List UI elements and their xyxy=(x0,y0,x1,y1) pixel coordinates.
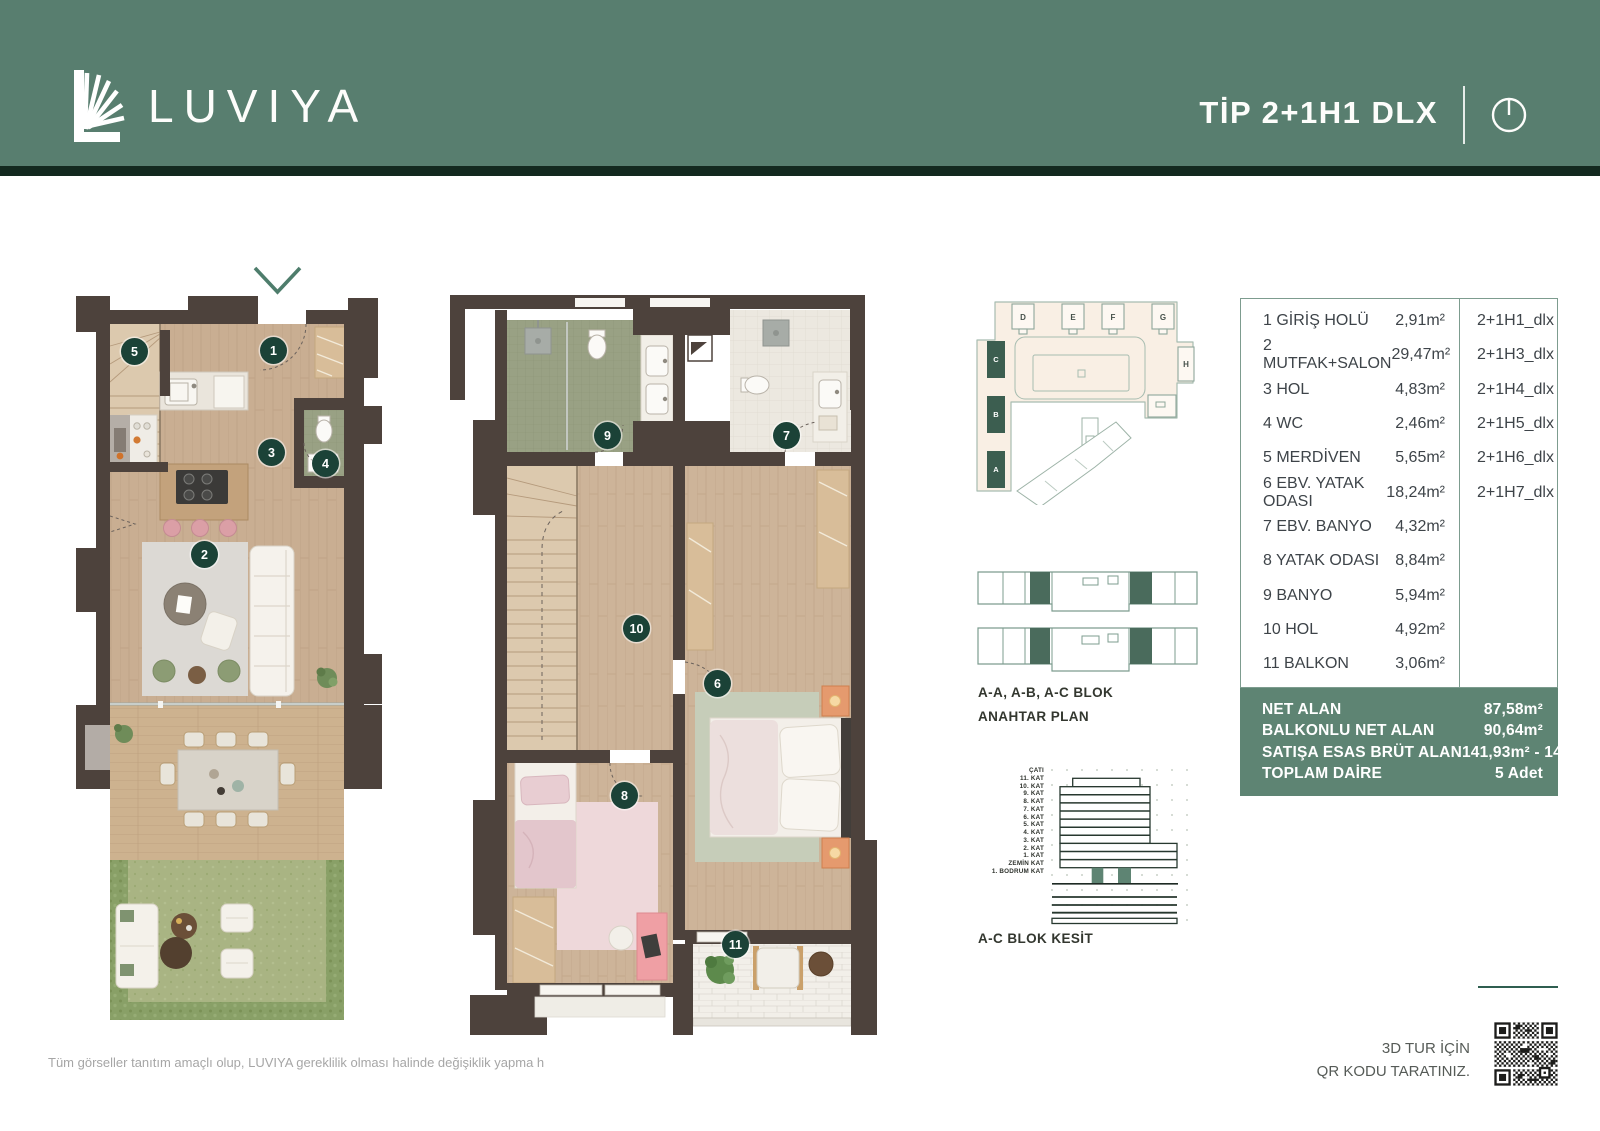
shaft-icon xyxy=(688,335,712,361)
block-label: D xyxy=(1020,313,1026,322)
key-plan-caption: A-A, A-B, A-C BLOK ANAHTAR PLAN xyxy=(978,681,1113,729)
summary-value: 5 Adet xyxy=(1495,765,1543,783)
table-row: 2 MUTFAK+SALON29,47m² xyxy=(1241,338,1459,372)
summary-label: NET ALAN xyxy=(1262,701,1341,719)
summary-box: NET ALAN87,58m² BALKONLU NET ALAN90,64m²… xyxy=(1240,688,1558,796)
room-badge-ensuite-bath: 7 xyxy=(773,422,800,449)
header-band: LUVIYA TİP 2+1H1 DLX xyxy=(0,0,1600,166)
block-label: C xyxy=(993,355,999,364)
summary-value: 141,93m² - 146,06m² xyxy=(1462,744,1600,762)
block-label: G xyxy=(1160,313,1166,322)
room-area: 5,94m² xyxy=(1395,587,1445,605)
room-label: 5 MERDİVEN xyxy=(1263,449,1361,467)
table-row: 6 EBV. YATAK ODASI18,24m² xyxy=(1241,475,1459,509)
toilet xyxy=(588,335,606,359)
utility-box xyxy=(85,725,110,770)
table-row: 5 MERDİVEN5,65m² xyxy=(1241,441,1459,475)
room-badge-master: 6 xyxy=(704,670,731,697)
disclaimer-text: Tüm görseller tanıtım amaçlı olup, LUVIY… xyxy=(48,1055,544,1070)
section-column xyxy=(1118,868,1131,884)
outdoor-table xyxy=(160,937,192,969)
room-label: 10 HOL xyxy=(1263,621,1318,639)
room-area: 4,92m² xyxy=(1395,621,1445,639)
room-area: 4,83m² xyxy=(1395,381,1445,399)
section-diagram xyxy=(1048,766,1196,934)
floor-label: ÇATI xyxy=(930,767,1044,775)
summary-row: BALKONLU NET ALAN90,64m² xyxy=(1262,722,1543,740)
balcony-table xyxy=(809,952,833,976)
table-row: 9 BANYO5,94m² xyxy=(1241,578,1459,612)
hedge-right xyxy=(326,860,344,1020)
hedge-bottom xyxy=(110,1002,344,1020)
room-label: 3 HOL xyxy=(1263,381,1309,399)
floor-label: 2. KAT xyxy=(930,845,1044,853)
site-road xyxy=(1017,418,1131,505)
room-label: 11 BALKON xyxy=(1263,655,1349,673)
table-row: 8 YATAK ODASI8,84m² xyxy=(1241,544,1459,578)
sofa xyxy=(250,546,294,696)
summary-row: NET ALAN87,58m² xyxy=(1262,701,1543,719)
block-label: F xyxy=(1111,313,1116,322)
outdoor-table xyxy=(171,913,197,939)
type-label: 2+1H1_dlx xyxy=(1460,304,1557,338)
room-label: 9 BANYO xyxy=(1263,587,1332,605)
fireplace xyxy=(110,415,130,469)
qr-caption: 3D TUR İÇİN QR KODU TARATINIZ. xyxy=(1317,1037,1470,1083)
room-area: 18,24m² xyxy=(1386,484,1445,502)
type-label: 2+1H7_dlx xyxy=(1460,475,1557,509)
brand-logo: LUVIYA xyxy=(70,66,368,146)
room-badge-entry: 1 xyxy=(260,337,287,364)
stool xyxy=(192,520,209,537)
section-floor-labels: ÇATI 11. KAT 10. KAT 9. KAT 8. KAT 7. KA… xyxy=(930,767,1044,876)
room-area: 4,32m² xyxy=(1395,518,1445,536)
key-plan-caption-line2: ANAHTAR PLAN xyxy=(978,705,1113,729)
highlighted-unit xyxy=(1030,628,1050,664)
highlighted-unit xyxy=(1030,572,1050,604)
block-label: B xyxy=(993,410,999,419)
room-badge-bedroom: 8 xyxy=(611,782,638,809)
section-caption: A-C BLOK KESİT xyxy=(978,931,1093,946)
floor-label: 1. BODRUM KAT xyxy=(930,868,1044,876)
header-divider xyxy=(1463,86,1465,144)
room-area: 29,47m² xyxy=(1391,346,1450,364)
floor-label: ZEMİN KAT xyxy=(930,860,1044,868)
header-accent-strip xyxy=(0,166,1600,176)
wardrobe xyxy=(817,470,849,588)
side-table xyxy=(188,666,206,684)
room-label: 7 EBV. BANYO xyxy=(1263,518,1372,536)
block-label: A xyxy=(993,465,999,474)
summary-label: BALKONLU NET ALAN xyxy=(1262,722,1434,740)
floor-label: 7. KAT xyxy=(930,806,1044,814)
entry-wardrobe xyxy=(315,327,345,378)
block-label: H xyxy=(1183,360,1189,369)
luviya-emblem-icon xyxy=(70,66,128,146)
balcony-chair xyxy=(757,948,799,988)
entrance-arrow-icon xyxy=(255,268,300,292)
room-badge-wc: 4 xyxy=(312,450,339,477)
wardrobe xyxy=(687,523,713,650)
stool xyxy=(220,520,237,537)
room-area: 2,91m² xyxy=(1395,312,1445,330)
qr-accent-line xyxy=(1478,986,1558,988)
floor-label: 8. KAT xyxy=(930,798,1044,806)
type-label: 2+1H6_dlx xyxy=(1460,441,1557,475)
wardrobe xyxy=(513,897,555,983)
summary-row: TOPLAM DAİRE5 Adet xyxy=(1262,765,1543,783)
table-row: 11 BALKON3,06m² xyxy=(1241,647,1459,681)
room-badge-living: 2 xyxy=(191,541,218,568)
pouf xyxy=(218,660,240,682)
summary-label: TOPLAM DAİRE xyxy=(1262,765,1382,783)
area-table: 1 GİRİŞ HOLÜ2,91m² 2 MUTFAK+SALON29,47m²… xyxy=(1240,298,1558,688)
table-row: 4 WC2,46m² xyxy=(1241,407,1459,441)
floor-label: 4. KAT xyxy=(930,829,1044,837)
floor-label: 5. KAT xyxy=(930,821,1044,829)
qr-code xyxy=(1492,1020,1560,1088)
block-label: E xyxy=(1070,313,1076,322)
section-column xyxy=(1092,868,1104,884)
type-label: 2+1H4_dlx xyxy=(1460,373,1557,407)
qr-caption-line1: 3D TUR İÇİN xyxy=(1317,1037,1470,1060)
compass-icon xyxy=(1489,95,1529,135)
rooms-column: 1 GİRİŞ HOLÜ2,91m² 2 MUTFAK+SALON29,47m²… xyxy=(1241,299,1460,687)
page-title: TİP 2+1H1 DLX xyxy=(1199,95,1438,131)
room-badge-bathroom: 9 xyxy=(594,422,621,449)
floor-label: 1. KAT xyxy=(930,852,1044,860)
floor-plan-ground xyxy=(48,258,392,1040)
tall-cabinet xyxy=(128,415,157,469)
qr-caption-line2: QR KODU TARATINIZ. xyxy=(1317,1060,1470,1083)
floor-label: 11. KAT xyxy=(930,775,1044,783)
room-area: 5,65m² xyxy=(1395,449,1445,467)
kitchen-island xyxy=(160,464,248,537)
room-label: 6 EBV. YATAK ODASI xyxy=(1263,475,1386,511)
type-label: 2+1H5_dlx xyxy=(1460,407,1557,441)
highlighted-unit xyxy=(1130,572,1152,604)
floor-label: 10. KAT xyxy=(930,783,1044,791)
site-plan: D E F G H C B A xyxy=(945,285,1200,505)
room-label: 2 MUTFAK+SALON xyxy=(1263,337,1391,373)
type-label: 2+1H3_dlx xyxy=(1460,338,1557,372)
room-badge-balcony: 11 xyxy=(722,931,749,958)
table-row: 10 HOL4,92m² xyxy=(1241,613,1459,647)
summary-value: 87,58m² xyxy=(1484,701,1543,719)
kitchen-counter xyxy=(160,372,248,410)
key-plan-diagram xyxy=(975,566,1203,678)
brand-name: LUVIYA xyxy=(148,83,368,129)
room-badge-stairs: 5 xyxy=(121,338,148,365)
floor-label: 6. KAT xyxy=(930,814,1044,822)
types-column: 2+1H1_dlx 2+1H3_dlx 2+1H4_dlx 2+1H5_dlx … xyxy=(1460,299,1557,687)
room-area: 8,84m² xyxy=(1395,552,1445,570)
brochure-page: LUVIYA TİP 2+1H1 DLX xyxy=(0,0,1600,1131)
room-badge-hall: 3 xyxy=(258,439,285,466)
desk-chair xyxy=(609,926,633,950)
key-plan-caption-line1: A-A, A-B, A-C BLOK xyxy=(978,681,1113,705)
site-buildings-highlighted: C B A xyxy=(987,341,1005,488)
floor-plan-upper xyxy=(445,280,880,1035)
room-label: 1 GİRİŞ HOLÜ xyxy=(1263,312,1369,330)
dining-table xyxy=(178,750,278,810)
table-row: 1 GİRİŞ HOLÜ2,91m² xyxy=(1241,304,1459,338)
highlighted-unit xyxy=(1130,628,1152,664)
stool xyxy=(164,520,181,537)
pouf xyxy=(153,660,175,682)
toilet xyxy=(745,376,769,394)
table-row: 3 HOL4,83m² xyxy=(1241,373,1459,407)
room-label: 8 YATAK ODASI xyxy=(1263,552,1379,570)
room-label: 4 WC xyxy=(1263,415,1303,433)
room-area: 2,46m² xyxy=(1395,415,1445,433)
headboard xyxy=(841,718,851,838)
summary-label: SATIŞA ESAS BRÜT ALAN xyxy=(1262,744,1462,762)
summary-row: SATIŞA ESAS BRÜT ALAN141,93m² - 146,06m² xyxy=(1262,744,1543,762)
summary-value: 90,64m² xyxy=(1484,722,1543,740)
floor-label: 3. KAT xyxy=(930,837,1044,845)
table-row: 7 EBV. BANYO4,32m² xyxy=(1241,510,1459,544)
room-badge-upper-hall: 10 xyxy=(623,615,650,642)
floor-label: 9. KAT xyxy=(930,790,1044,798)
room-area: 3,06m² xyxy=(1395,655,1445,673)
